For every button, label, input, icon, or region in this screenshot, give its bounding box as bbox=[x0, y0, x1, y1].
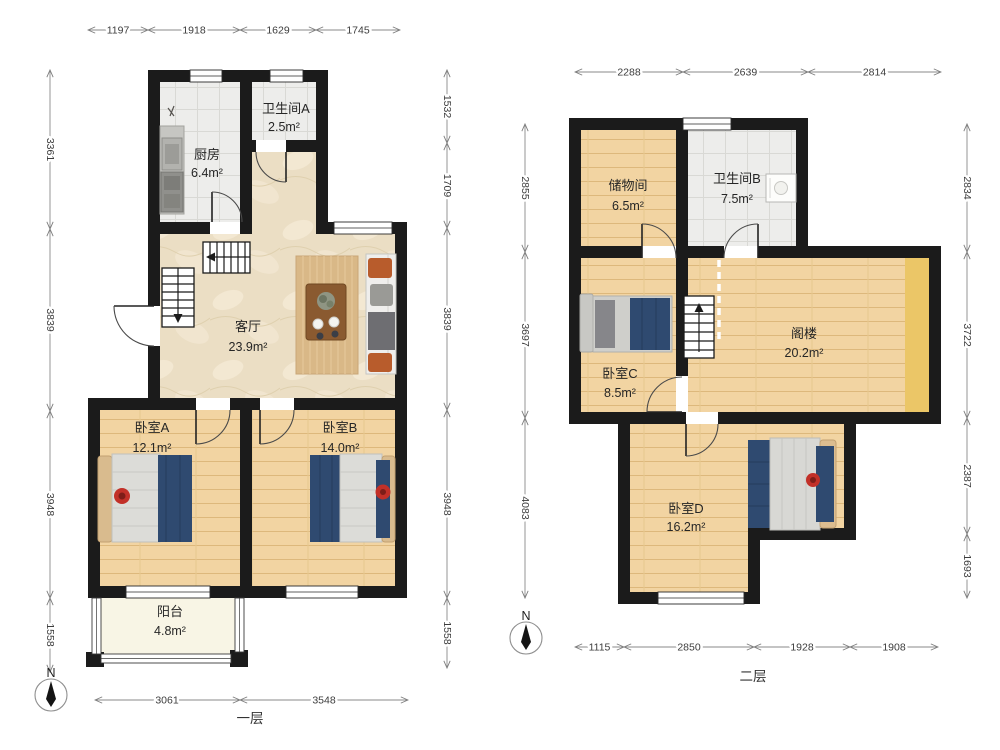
bed-b-label: 卧室B bbox=[323, 420, 358, 435]
balcony-label: 阳台 bbox=[157, 604, 183, 619]
floorplan-svg: 厨房 6.4m² 卫生间A 2.5m² 客厅 23.9m² 卧室A 12.1m²… bbox=[0, 0, 1000, 750]
kitchen-area: 6.4m² bbox=[191, 166, 223, 180]
dim2-top-1: 2288 bbox=[617, 67, 641, 79]
bed-c bbox=[580, 294, 672, 352]
dim-left-2: 3839 bbox=[44, 308, 56, 332]
dim2-top-3: 2814 bbox=[863, 67, 887, 79]
stairs-up-icon bbox=[684, 296, 714, 358]
bath-a-window bbox=[270, 70, 303, 82]
bath-b-area: 7.5m² bbox=[721, 192, 753, 206]
kitchen-window bbox=[190, 70, 222, 82]
kitchen-label: 厨房 bbox=[194, 147, 220, 162]
bed-b-window bbox=[286, 586, 358, 598]
living-area: 23.9m² bbox=[229, 340, 268, 354]
dim-top-4: 1745 bbox=[346, 25, 370, 37]
compass-icon: N bbox=[35, 666, 67, 711]
dim2-right-1: 2834 bbox=[961, 176, 973, 200]
stairs-upper-icon bbox=[203, 242, 250, 273]
dim2-top-2: 2639 bbox=[734, 67, 758, 79]
storage-label: 储物间 bbox=[608, 178, 647, 193]
bed-d-area: 16.2m² bbox=[667, 520, 706, 534]
dim-right-1: 1532 bbox=[441, 95, 453, 119]
room-living-floor bbox=[160, 234, 395, 398]
floorplan-image: 厨房 6.4m² 卫生间A 2.5m² 客厅 23.9m² 卧室A 12.1m²… bbox=[0, 0, 1000, 750]
bed-d bbox=[748, 438, 836, 530]
bed-b bbox=[310, 454, 395, 542]
bed-a-balcony-window bbox=[126, 586, 210, 598]
living-rug bbox=[296, 256, 358, 374]
compass-n-label: N bbox=[521, 609, 530, 623]
floor2-title: 二层 bbox=[740, 669, 767, 684]
dim-right-2: 1709 bbox=[441, 174, 453, 198]
dim2-left-2: 3697 bbox=[519, 323, 531, 347]
dim-right-4: 3948 bbox=[441, 492, 453, 516]
dim-left-3: 3948 bbox=[44, 493, 56, 517]
storage-area: 6.5m² bbox=[612, 199, 644, 213]
dim2-left-3: 4083 bbox=[519, 496, 531, 520]
floor2-plan: 储物间 6.5m² 卫生间B 7.5m² 卧室C 8.5m² 阁楼 20.2m²… bbox=[510, 67, 973, 685]
bath-a-label: 卫生间A bbox=[262, 101, 310, 116]
floor1-title: 一层 bbox=[237, 711, 264, 726]
living-label: 客厅 bbox=[235, 319, 261, 334]
washing-machine-icon bbox=[766, 174, 796, 202]
bed-d-label: 卧室D bbox=[668, 501, 703, 516]
bed-d-window bbox=[658, 592, 744, 604]
dim2-right-3: 2387 bbox=[961, 464, 973, 488]
entry-door-swing-icon bbox=[114, 306, 154, 346]
dim-left-4: 1558 bbox=[44, 623, 56, 647]
dim2-right-2: 3722 bbox=[961, 323, 973, 347]
bed-c-label: 卧室C bbox=[602, 366, 637, 381]
dim2-bottom-1: 1115 bbox=[589, 642, 611, 654]
bed-c-area: 8.5m² bbox=[604, 386, 636, 400]
dim2-left-1: 2855 bbox=[519, 176, 531, 200]
hallway-floor bbox=[252, 152, 316, 234]
attic-strip bbox=[905, 258, 929, 412]
compass-n-label: N bbox=[46, 666, 55, 680]
dim2-bottom-3: 1928 bbox=[790, 642, 814, 654]
bed-b-area: 14.0m² bbox=[321, 441, 360, 455]
dim2-bottom-2: 2850 bbox=[677, 642, 701, 654]
dim-bottom-1: 3061 bbox=[155, 695, 179, 707]
bed-a bbox=[98, 454, 192, 542]
bath-b-label: 卫生间B bbox=[713, 171, 761, 186]
dim-left-1: 3361 bbox=[44, 138, 56, 162]
stairs-down-icon bbox=[162, 268, 194, 327]
dim-top-1: 1197 bbox=[107, 25, 130, 37]
dim-right-5: 1558 bbox=[441, 621, 453, 645]
dim-bottom-2: 3548 bbox=[312, 695, 336, 707]
bath-a-area: 2.5m² bbox=[268, 120, 300, 134]
dim-right-3: 3839 bbox=[441, 307, 453, 331]
balcony-area: 4.8m² bbox=[154, 624, 186, 638]
compass-icon: N bbox=[510, 609, 542, 654]
dim-top-2: 1918 bbox=[182, 25, 206, 37]
floor1-plan: 厨房 6.4m² 卫生间A 2.5m² 客厅 23.9m² 卧室A 12.1m²… bbox=[35, 25, 453, 727]
living-window bbox=[334, 222, 392, 234]
dim2-right-4: 1693 bbox=[961, 554, 973, 578]
living-sofa bbox=[366, 254, 396, 374]
bed-a-label: 卧室A bbox=[135, 420, 170, 435]
storage-bath-b-window bbox=[683, 118, 731, 130]
dim-top-3: 1629 bbox=[266, 25, 290, 37]
bed-a-area: 12.1m² bbox=[133, 441, 172, 455]
attic-area: 20.2m² bbox=[785, 346, 824, 360]
dim2-bottom-4: 1908 bbox=[882, 642, 906, 654]
attic-label: 阁楼 bbox=[791, 326, 817, 341]
